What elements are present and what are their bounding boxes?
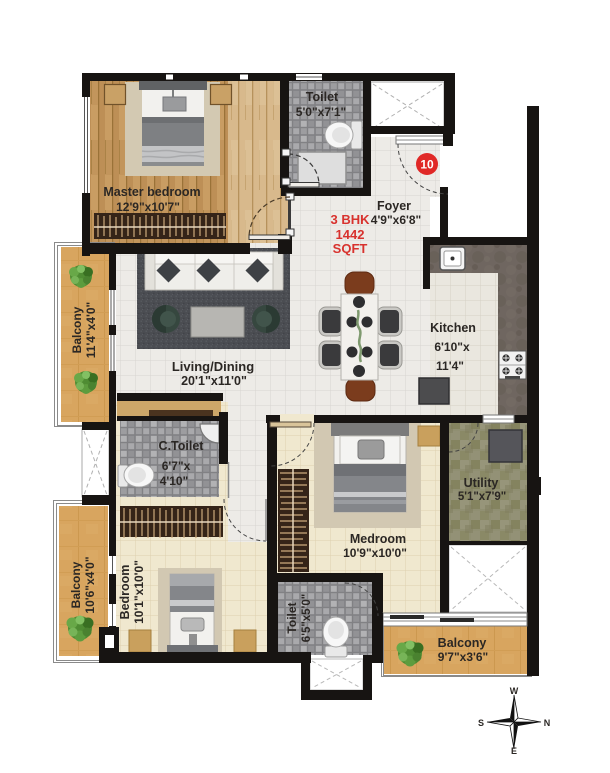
svg-text:6'10"x: 6'10"x (434, 340, 470, 354)
svg-text:11'4": 11'4" (436, 359, 464, 373)
svg-text:Balcony: Balcony (438, 636, 487, 650)
svg-text:Balcony: Balcony (69, 561, 83, 608)
svg-text:10'9"x10'0": 10'9"x10'0" (343, 546, 407, 560)
svg-text:4'10": 4'10" (160, 474, 189, 488)
svg-text:11'4"x4'0": 11'4"x4'0" (84, 302, 98, 358)
svg-text:6'7"x: 6'7"x (162, 459, 191, 473)
svg-text:Toilet: Toilet (306, 90, 339, 104)
svg-text:1442: 1442 (336, 227, 365, 242)
svg-text:9'7"x3'6": 9'7"x3'6" (438, 650, 488, 664)
svg-text:20'1"x11'0": 20'1"x11'0" (181, 374, 247, 388)
svg-text:3 BHK: 3 BHK (330, 212, 370, 227)
svg-text:C.Toilet: C.Toilet (159, 439, 205, 453)
svg-text:S: S (478, 718, 484, 728)
svg-text:10'6"x4'0": 10'6"x4'0" (83, 556, 97, 613)
svg-text:Kitchen: Kitchen (430, 321, 476, 335)
svg-text:SQFT: SQFT (333, 241, 368, 256)
svg-text:5'0"x7'1": 5'0"x7'1" (296, 105, 346, 119)
svg-text:4'9"x6'8": 4'9"x6'8" (371, 213, 421, 227)
svg-text:10'1"x10'0": 10'1"x10'0" (132, 560, 146, 624)
svg-text:5'1"x7'9": 5'1"x7'9" (458, 491, 506, 503)
svg-text:Living/Dining: Living/Dining (172, 359, 254, 374)
svg-text:6'5"x5'0": 6'5"x5'0" (301, 594, 313, 642)
svg-text:Master bedroom: Master bedroom (103, 185, 200, 199)
svg-text:Balcony: Balcony (70, 306, 84, 353)
svg-text:N: N (544, 718, 551, 728)
svg-text:12'9"x10'7": 12'9"x10'7" (116, 200, 180, 214)
svg-text:Foyer: Foyer (377, 199, 411, 213)
svg-text:Medroom: Medroom (350, 532, 406, 546)
svg-text:W: W (510, 686, 519, 696)
svg-text:E: E (511, 746, 517, 756)
svg-text:Toilet: Toilet (285, 602, 299, 633)
svg-text:Bedroom: Bedroom (118, 565, 132, 620)
svg-text:10: 10 (420, 158, 434, 172)
svg-text:Utility: Utility (464, 476, 499, 490)
